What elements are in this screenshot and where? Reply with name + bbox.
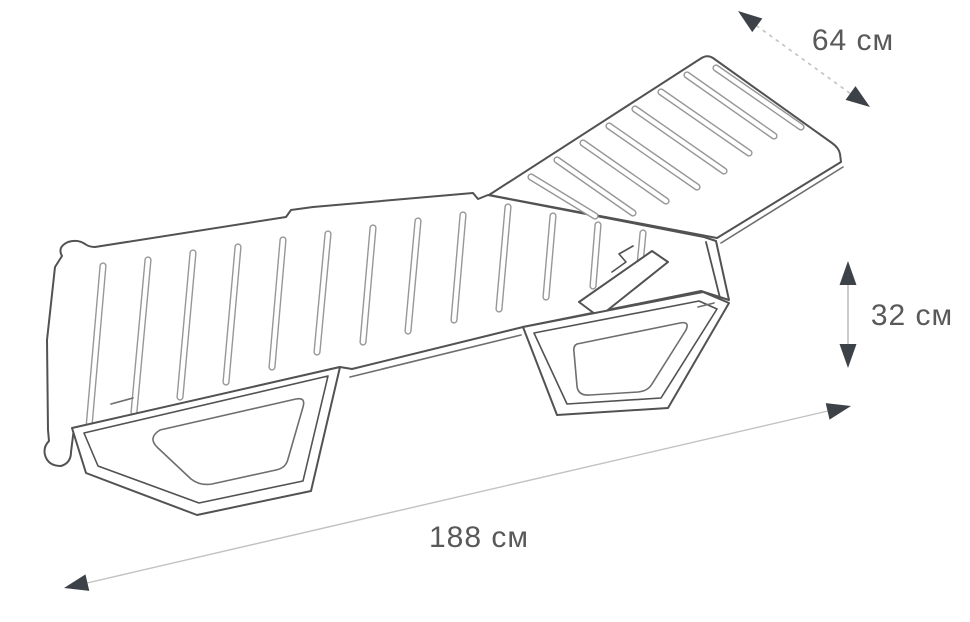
arrowhead (62, 574, 89, 596)
arrowhead (840, 344, 857, 368)
arrowhead (826, 398, 853, 420)
height-label: 32 см (871, 299, 953, 332)
arrowhead (840, 261, 857, 285)
width-label: 64 см (812, 24, 894, 57)
arrowhead (846, 86, 875, 114)
length-label: 188 см (429, 521, 529, 554)
height-dimension: 32 см (840, 261, 954, 368)
arrowhead (733, 4, 762, 32)
lounger-line-drawing: 64 см 32 см 188 см (0, 0, 970, 622)
product-dimension-diagram: 64 см 32 см 188 см (0, 0, 970, 622)
